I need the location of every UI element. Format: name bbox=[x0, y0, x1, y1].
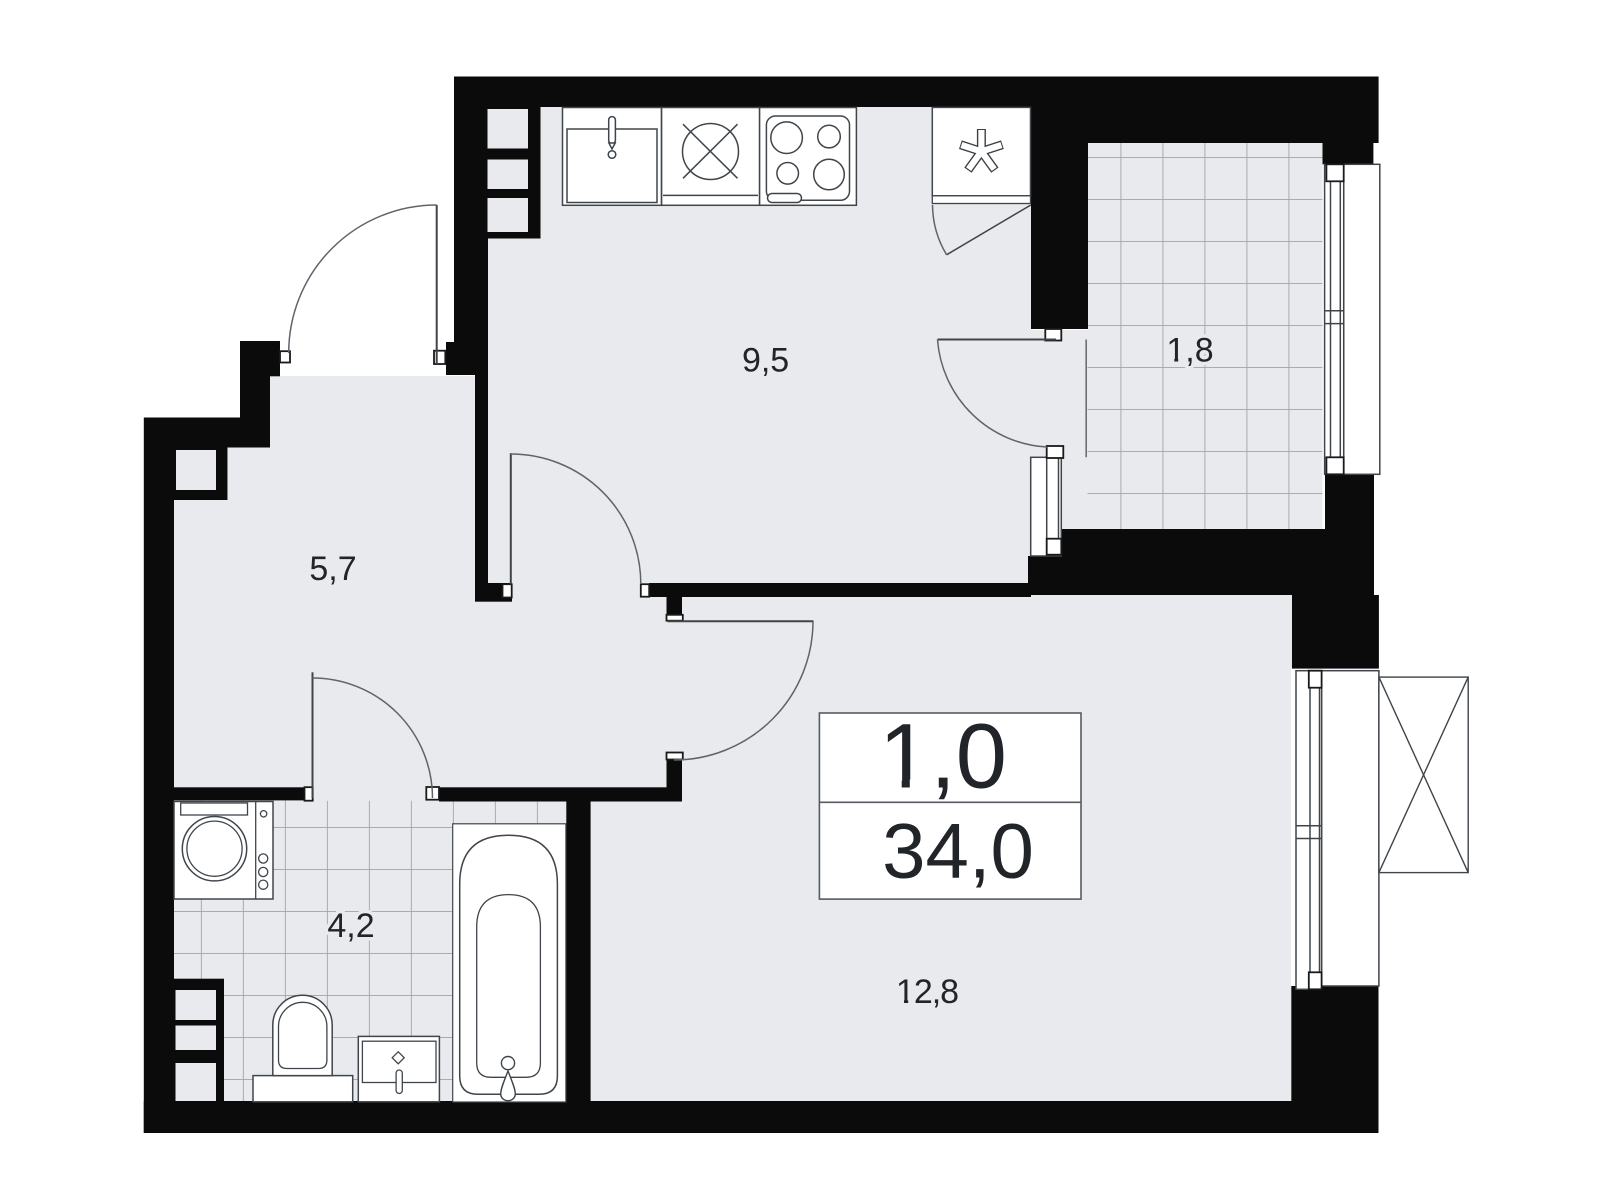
svg-text:9,5: 9,5 bbox=[742, 341, 789, 379]
svg-text:1,8: 1,8 bbox=[1166, 331, 1213, 369]
svg-text:4,2: 4,2 bbox=[327, 907, 374, 945]
svg-text:5,7: 5,7 bbox=[309, 550, 356, 588]
svg-text:12,8: 12,8 bbox=[896, 973, 958, 1011]
svg-text:34,0: 34,0 bbox=[882, 807, 1034, 895]
svg-text:1,0: 1,0 bbox=[879, 706, 1007, 808]
